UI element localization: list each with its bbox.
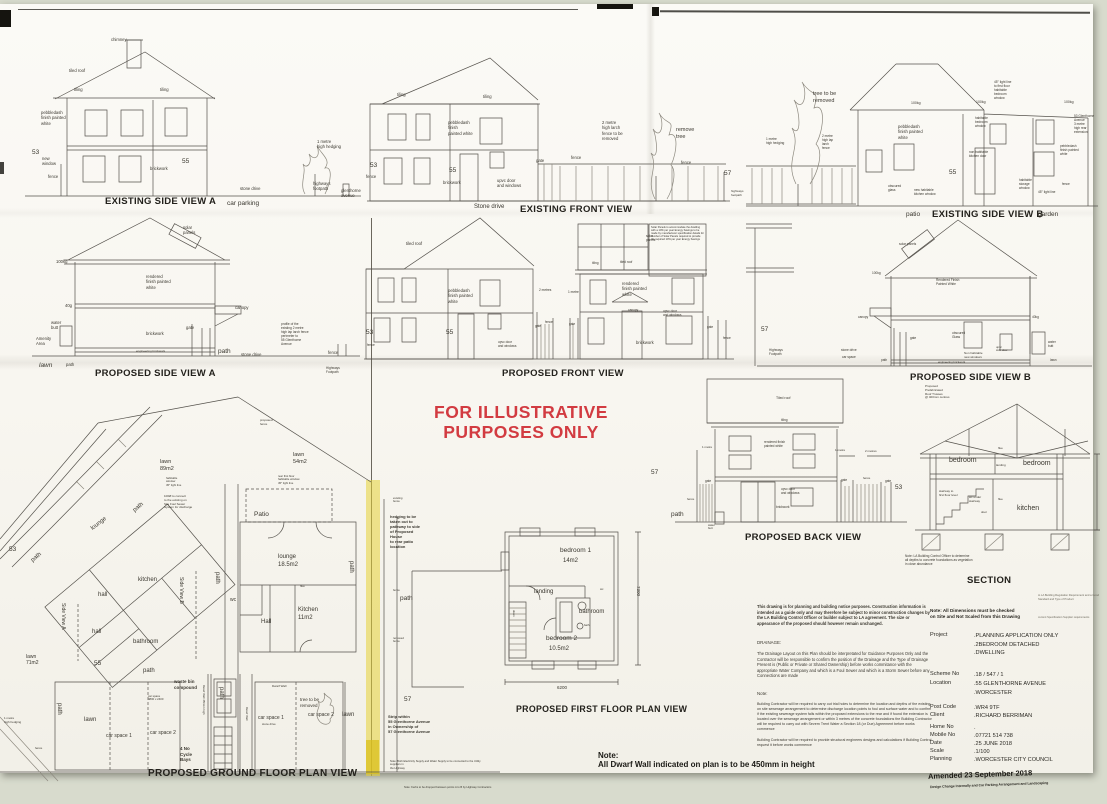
annotation-label: lawn xyxy=(84,717,96,725)
annotation-label: new window xyxy=(42,156,58,167)
annotation-label: Highways Footpath xyxy=(769,348,789,356)
field-label: Location xyxy=(930,680,974,697)
annotation-label: solar panels xyxy=(183,225,203,236)
annotation-label: gate xyxy=(910,336,916,340)
field-value: .WORCESTER CITY COUNCIL xyxy=(974,756,1053,765)
annotation-label: 7300 xyxy=(635,586,641,596)
annotation-label: 1 metre xyxy=(568,290,579,294)
annotation-label: lawn 54m2 xyxy=(293,452,307,466)
annotation-label: 1 metre high hedging xyxy=(766,137,788,145)
annotation-label: Rendered Finish Painted White xyxy=(936,278,966,286)
annotation-label: brickwork xyxy=(636,340,654,345)
field-label: Scheme No xyxy=(930,671,974,680)
annotation-label: pebbledash finish painted white xyxy=(448,120,478,136)
annotation-label: path xyxy=(347,561,355,573)
annotation-label: 45° light line xyxy=(1038,190,1056,194)
annotation-label: fence xyxy=(571,155,581,160)
scanned-plan-page: { "stamp": {"line1": "FOR ILLUSTRATIVE",… xyxy=(0,0,1107,800)
annotation-label: existing fence xyxy=(393,497,402,504)
scan-artifact xyxy=(652,7,659,16)
annotation-label: 57 xyxy=(404,696,411,704)
annotation-label: chimney xyxy=(111,37,127,42)
annotation-label: tiled roof xyxy=(620,260,632,264)
annotation-label: bedroom 1 xyxy=(560,547,591,555)
annotation-label: fence xyxy=(328,350,338,355)
amended-note: Amended 23 September 2018 xyxy=(928,768,1032,781)
annotation-label: 57 xyxy=(651,469,658,477)
annotation-label: 1 metre xyxy=(702,446,712,450)
annotation-label: fence xyxy=(48,174,58,179)
annotation-label: car space 4800 x 2400 xyxy=(148,695,168,702)
annotation-label: landing xyxy=(996,464,1006,468)
annotation-label: water butt xyxy=(51,320,65,331)
contractor-note-heading: Note: xyxy=(757,691,933,696)
annotation-label: rear first floor habitable window 45° li… xyxy=(278,475,302,485)
annotation-label: canopy xyxy=(628,308,638,312)
annotation-label: car space xyxy=(842,355,856,359)
stamp-line-2: PURPOSES ONLY xyxy=(426,422,616,442)
annotation-label: bedroom xyxy=(949,457,977,466)
annotation-label: 2 metres xyxy=(539,288,551,292)
annotation-label: flue xyxy=(998,447,1003,451)
annotation-label: 100Ø to connect to the existing on Site … xyxy=(164,495,194,510)
annotation-label: stone drive xyxy=(241,352,261,357)
annotation-label: rendered finish painted white xyxy=(622,281,648,297)
annotation-label: upvc door and windows xyxy=(781,487,805,495)
annotation-label: fence xyxy=(723,336,731,340)
annotation-label: Amenity Area xyxy=(36,336,54,347)
annotation-label: 53 xyxy=(9,546,16,554)
annotation-label: lounge 18.5m2 xyxy=(278,554,298,569)
annotation-label: brickwork xyxy=(146,331,164,336)
annotation-label: rendered finish painted white xyxy=(764,440,792,448)
annotation-label: 57 xyxy=(761,326,768,334)
annotation-label: pebbledash finish painted white xyxy=(448,288,474,304)
annotation-label: canopy xyxy=(235,305,249,310)
annotation-label: pebbledash finish painted white xyxy=(898,124,924,140)
title-block: Note: All Dimensions must be checked on … xyxy=(920,590,1107,804)
annotation-label: path xyxy=(217,687,225,699)
annotation-label: down xyxy=(512,610,515,617)
view-first-floor-plan: PROPOSED FIRST FLOOR PLAN VIEW bedroom 1… xyxy=(480,514,705,729)
annotation-label: lawn xyxy=(342,712,354,720)
annotation-label: profile of the existing 2 metre high lap… xyxy=(281,322,313,346)
annotation-label: 2 metre high lap larch fence xyxy=(822,134,838,150)
contractor-note: Building Contractor will be required to … xyxy=(757,702,933,732)
annotation-label: obscured Glass xyxy=(952,331,972,339)
annotation-label: 10.5m2 xyxy=(549,646,569,654)
annotation-label: car space 1 xyxy=(258,715,284,721)
annotation-label: Hall xyxy=(261,619,271,627)
annotation-label: bath xyxy=(584,624,589,627)
view-existing-front: EXISTING FRONT VIEW tilingtilingpebbleda… xyxy=(362,54,742,218)
annotation-label: stairway to first floor level xyxy=(939,490,961,498)
annotation-label: wc xyxy=(600,588,603,591)
view-proposed-front: Solar Panels to accommodate the dwelling… xyxy=(362,216,742,382)
annotation-label: tiling xyxy=(397,92,406,97)
annotation-label: Non habitable new windows xyxy=(964,352,990,360)
annotation-label: hedging to be taken out to pathway to si… xyxy=(390,514,426,549)
annotation-label: highways footpath xyxy=(313,181,333,192)
annotation-label: 53 Glenthorne Avenue 3 metre high rear e… xyxy=(1074,114,1102,134)
view-proposed-side-a: PROPOSED SIDE VIEW A solar panels100kgre… xyxy=(20,216,365,381)
annotation-label: 100kg xyxy=(872,271,881,275)
view-title: PROPOSED FRONT VIEW xyxy=(502,368,624,379)
view-title: PROPOSED SIDE VIEW A xyxy=(95,368,216,379)
annotation-label: 100kg xyxy=(976,100,986,104)
annotation-label: 2 metres xyxy=(865,450,877,454)
ground-floor-plan-drawing xyxy=(0,389,505,804)
disclaimer-notes: This drawing is for planning and buildin… xyxy=(757,604,933,754)
scan-artifact xyxy=(0,162,4,174)
annotation-label: 55 xyxy=(449,167,456,175)
scan-artifact xyxy=(597,4,633,9)
annotation-label: lawn 71m2 xyxy=(26,654,39,667)
annotation-label: upvc door and windows xyxy=(497,178,523,189)
annotation-label: 100kg xyxy=(1064,100,1074,104)
annotation-label: hall xyxy=(98,592,107,600)
view-section: SECTION Proposed Prefabricated Roof Trus… xyxy=(905,382,1105,597)
annotation-label: upvc door and windows xyxy=(663,309,689,317)
annotation-label: canopy xyxy=(858,315,868,319)
annotation-label: 1 metre high hedging xyxy=(4,717,24,725)
annotation-label: tiled roof xyxy=(406,241,422,246)
annotation-label: Proposed Prefabricated Roof Trusses @ 40… xyxy=(925,385,953,400)
annotation-label: fence xyxy=(863,477,870,481)
annotation-label: brickwork xyxy=(443,180,461,185)
annotation-label: Dwarf Wall xyxy=(245,707,248,720)
annotation-label: Side View A xyxy=(60,603,66,630)
view-title: PROPOSED FIRST FLOOR PLAN VIEW xyxy=(516,704,687,714)
annotation-label: gate xyxy=(186,325,194,330)
annotation-label: fence xyxy=(1062,182,1070,186)
scanned-architectural-drawing: EXISTING SIDE VIEW A chimneytiled roofti… xyxy=(0,4,1093,773)
annotation-label: new habitable kitchen window xyxy=(914,188,942,196)
view-title: EXISTING SIDE VIEW A xyxy=(105,196,216,207)
annotation-label: rendered finish painted white xyxy=(146,274,174,290)
annotation-label: wc xyxy=(230,597,236,603)
annotation-label: Dwarf Wall 450mm high xyxy=(202,685,205,715)
annotation-label: fence xyxy=(393,589,400,592)
annotation-label: 57 xyxy=(724,170,731,178)
annotation-label: Kitchen 11m2 xyxy=(298,607,318,622)
annotation-label: path xyxy=(66,362,74,367)
annotation-label: gate xyxy=(705,479,711,483)
annotation-label: 53 xyxy=(366,329,373,337)
annotation-label: fence xyxy=(681,160,691,165)
annotation-label: Tiled roof xyxy=(776,396,790,400)
annotation-label: brickwork xyxy=(150,166,168,171)
annotation-label: path xyxy=(400,595,413,603)
annotation-label: 53 xyxy=(32,149,39,157)
annotation-label: fence xyxy=(367,343,375,347)
annotation-label: glenthorne avenue xyxy=(341,188,363,199)
annotation-label: 55 xyxy=(182,158,189,166)
annotation-label: flue xyxy=(998,498,1003,502)
field-value: .18 / 547 / 1 xyxy=(974,671,1004,680)
annotation-label: fence xyxy=(366,174,376,179)
annotation-label: bathroom xyxy=(133,639,158,647)
view-title: PROPOSED BACK VIEW xyxy=(745,532,861,543)
annotation-label: car space 1 xyxy=(106,733,132,739)
annotation-label: tree to be removed xyxy=(300,697,328,708)
annotation-label: 1 metre xyxy=(835,449,845,453)
annotation-label: 14m2 xyxy=(563,558,578,566)
annotation-label: tiled roof xyxy=(69,68,85,73)
proposed-side-view-a-drawing xyxy=(20,216,365,381)
dimensions-note: Note: All Dimensions must be checked on … xyxy=(930,608,1020,621)
annotation-label: 53 xyxy=(370,162,377,170)
drainage-note: The Drainage Layout on this Plan should … xyxy=(757,651,933,679)
annotation-label: 4 No Cycle Bays xyxy=(180,746,204,763)
annotation-label: kitchen xyxy=(1017,505,1039,514)
annotation-label: gate xyxy=(707,325,713,329)
annotation-label: Side View B xyxy=(178,577,184,604)
contractor-note-2: Building Contractor will be required to … xyxy=(757,738,933,748)
annotation-label: brickwork xyxy=(776,505,789,509)
annotation-label: 55 xyxy=(94,660,101,668)
annotation-label: lawn xyxy=(39,362,52,370)
annotation-label: path xyxy=(213,572,221,584)
annotation-label: habitable bedroom window xyxy=(975,116,997,128)
annotation-label: gate xyxy=(535,324,541,328)
annotation-label: gate xyxy=(841,478,847,482)
annotation-label: tiling xyxy=(160,87,169,92)
annotation-label: door xyxy=(981,511,987,515)
annotation-label: 100kg xyxy=(56,259,67,264)
annotation-label: engineering brickwork xyxy=(136,350,178,354)
annotation-label: Note: Kerbs to be dropped between points… xyxy=(404,786,500,789)
existing-side-view-b-drawing xyxy=(738,54,1106,226)
annotation-label: water butt xyxy=(708,524,720,531)
annotation-label: stone drive xyxy=(262,723,276,726)
field-label: Client xyxy=(930,712,974,721)
annotation-label: 40kg xyxy=(1032,315,1039,319)
annotation-label: 45° light line to first floor habitable … xyxy=(994,80,1018,100)
annotation-label: non habitable kitchen door xyxy=(969,150,995,158)
annotation-label: hall xyxy=(92,629,101,637)
annotation-label: Note: Both Electricity Supply and Water … xyxy=(390,760,482,770)
annotation-label: car space 2 xyxy=(308,712,334,718)
stamp-line-1: FOR ILLUSTRATIVE xyxy=(426,402,616,422)
annotation-label: path xyxy=(881,358,887,362)
annotation-label: gate xyxy=(569,322,575,326)
annotation-label: Highways Footpath xyxy=(326,366,348,374)
view-title: EXISTING FRONT VIEW xyxy=(520,204,632,215)
annotation-label: 2 metre high larch fence to be removed xyxy=(602,120,624,141)
field-value: .RICHARD BERRIMAN xyxy=(974,712,1032,721)
annotation-label: tiling xyxy=(74,87,83,92)
annotation-label: solar panels xyxy=(899,242,923,246)
annotation-label: 53 xyxy=(895,484,902,492)
annotation-label: water butt xyxy=(1048,340,1062,348)
annotation-label: car space 2 xyxy=(150,730,176,736)
annotation-label: engineering brickwork xyxy=(938,361,965,364)
annotation-label: bedroom 2 xyxy=(546,635,577,643)
annotation-label: solar panels xyxy=(646,234,662,242)
amended-sub-note: Design Change Internally and Car Parking… xyxy=(930,781,1048,789)
annotation-label: tiling xyxy=(483,94,492,99)
annotation-label: removed fence xyxy=(393,637,404,644)
purpose-note: This drawing is for planning and buildin… xyxy=(757,604,933,626)
annotation-label: fence xyxy=(687,498,694,502)
field-value: .PLANNING APPLICATION ONLY .2BEDROOM DET… xyxy=(974,632,1058,658)
annotation-label: kitchen xyxy=(138,577,157,585)
annotation-label: flue xyxy=(300,585,305,589)
annotation-label: stone drive xyxy=(240,186,260,191)
annotation-label: lawn 89m2 xyxy=(160,459,174,473)
field-label: Planning xyxy=(930,756,974,765)
annotation-label: fence xyxy=(545,320,553,324)
annotation-label: habitable storage window xyxy=(1019,178,1041,190)
annotation-label: tree to be removed xyxy=(813,91,845,105)
annotation-label: 40g xyxy=(65,303,72,308)
view-proposed-side-b: PROPOSED SIDE VIEW B solar panels100kgRe… xyxy=(742,216,1102,388)
annotation-label: pebbledash finish painted white xyxy=(41,110,71,126)
annotation-label: wc under stairway xyxy=(969,496,987,504)
view-existing-side-a: EXISTING SIDE VIEW A chimneytiled roofti… xyxy=(5,24,365,216)
annotation-label: proposed fence xyxy=(260,419,273,427)
annotation-label: 100kg xyxy=(911,101,921,105)
annotation-label: 55 xyxy=(446,329,453,337)
annotation-label: path xyxy=(218,348,231,356)
annotation-label: 6200 xyxy=(557,685,567,691)
annotation-label: bathroom xyxy=(579,609,604,617)
annotation-label: habitable window 45° light line xyxy=(166,477,184,487)
annotation-label: lawn xyxy=(1050,358,1057,362)
title-block-micro-note: current Specification Supplier requireme… xyxy=(1038,616,1100,620)
view-ground-floor-plan: PROPOSED GROUND FLOOR PLAN VIEW lawn 89m… xyxy=(0,389,505,804)
view-title: PROPOSED GROUND FLOOR PLAN VIEW xyxy=(148,768,357,779)
annotation-label: landing xyxy=(534,589,553,597)
annotation-label: Strip within 55 Glenthorne Avenue in Own… xyxy=(388,714,436,734)
annotation-label: gate xyxy=(885,479,891,483)
annotation-label: tiling xyxy=(781,418,788,422)
annotation-label: upvc side door xyxy=(996,346,1010,353)
annotation-label: tiling xyxy=(592,261,599,265)
annotation-label: 55 xyxy=(949,169,956,177)
annotation-label: pebbledash finish painted white xyxy=(1060,144,1084,156)
scan-artifact xyxy=(660,10,1090,13)
annotation-label: car parking xyxy=(227,200,259,208)
note-text: All Dwarf Wall indicated on plan is to b… xyxy=(598,760,815,769)
scan-artifact xyxy=(18,9,578,10)
annotation-label: path xyxy=(55,703,63,715)
drainage-heading: DRAINAGE: xyxy=(757,640,933,645)
annotation-label: upvc door and windows xyxy=(498,340,524,348)
view-existing-side-b: EXISTING SIDE VIEW B tree to be removed1… xyxy=(738,54,1106,226)
annotation-label: Dwarf Wall xyxy=(272,685,286,689)
first-floor-plan-drawing xyxy=(480,514,705,729)
annotation-label: remove tree xyxy=(676,127,700,141)
annotation-label: Stone drive xyxy=(474,204,504,212)
annotation-label: Note: LA Building Control Officer to det… xyxy=(905,554,975,566)
annotation-label: path xyxy=(143,668,155,676)
annotation-label: Patio xyxy=(254,511,269,519)
annotation-label: bedroom xyxy=(1023,460,1051,469)
annotation-label: fence xyxy=(35,747,42,751)
field-value: .55 GLENTHORNE AVENUE .WORCESTER xyxy=(974,680,1046,697)
field-label: Project xyxy=(930,632,974,658)
annotation-label: gate xyxy=(536,158,544,163)
view-title: SECTION xyxy=(967,575,1011,586)
illustrative-purposes-stamp: FOR ILLUSTRATIVE PURPOSES ONLY xyxy=(426,402,616,442)
annotation-label: obscured glass xyxy=(888,184,906,192)
annotation-label: stone drive xyxy=(841,348,857,352)
title-block-micro-note: to LA Building Regulation Requirement an… xyxy=(1038,594,1100,601)
annotation-label: 1 metre high hedging xyxy=(317,139,343,150)
